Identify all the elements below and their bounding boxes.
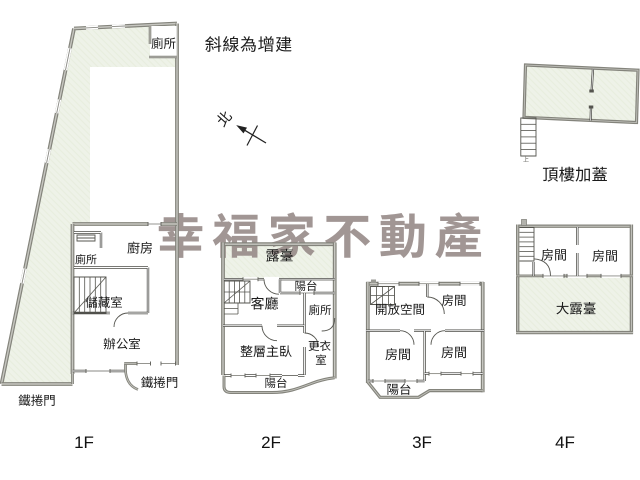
svg-text:1F: 1F bbox=[74, 433, 94, 452]
svg-text:2F: 2F bbox=[261, 433, 281, 452]
svg-text:4F: 4F bbox=[555, 433, 575, 452]
svg-text:3F: 3F bbox=[412, 433, 432, 452]
